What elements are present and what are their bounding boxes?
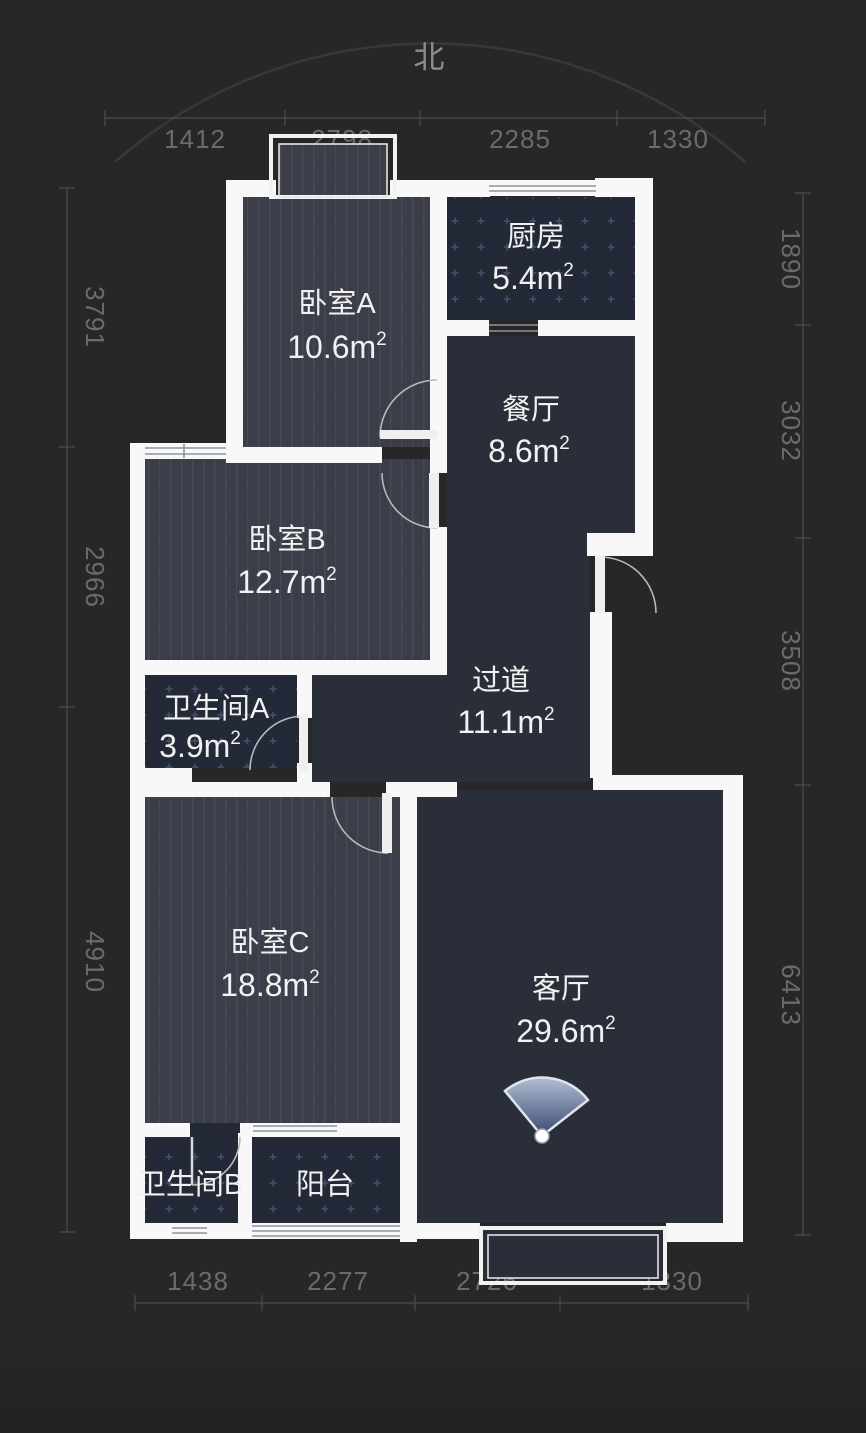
dim-top-4: 1330 [647,124,709,154]
wall-segment [635,178,653,533]
compass-north-label: 北 [414,40,445,75]
bottom-vignette [0,1340,866,1433]
room-label-dining-area: 8.6m2 [488,433,570,469]
dim-bottom-1: 1438 [167,1266,229,1296]
room-label-kitchen-area: 5.4m2 [492,260,574,296]
wall-segment [443,320,489,336]
wall-segment [723,775,743,1242]
room-label-living-area: 29.6m2 [516,1013,616,1049]
dim-right-2: 3032 [776,400,806,462]
door-leaf-bedroom-b [429,473,439,528]
dim-right-1: 1890 [776,228,806,290]
room-label-living-name: 客厅 [532,972,590,1005]
floorplan-canvas: 北 1412 2798 2285 1330 1438 2277 2726 133… [0,0,866,1433]
wall-segment [130,660,447,675]
room-bedroom-a-floor[interactable] [243,197,430,447]
wall-segment [226,180,243,463]
dim-top-1: 1412 [164,124,226,154]
wall-window-band [487,180,597,196]
room-kitchen-floor[interactable] [447,197,635,320]
bathroom-b-door-threshold [190,1123,240,1137]
wall-segment [190,782,330,797]
wall-segment [400,782,417,1242]
wall-segment [587,533,653,556]
dim-left-2: 2966 [80,546,110,608]
room-label-corridor-area: 11.1m2 [457,704,554,740]
room-label-bathroom-a-area: 3.9m2 [159,728,241,764]
room-bedroom-b-floor[interactable] [145,459,430,660]
room-label-bedroom-b-area: 12.7m2 [237,564,337,600]
wall-window-band [143,443,227,459]
room-label-bedroom-b-name: 卧室B [248,523,325,556]
dim-top-3: 2285 [489,124,551,154]
room-label-balcony-name: 阳台 [296,1168,354,1201]
wall-segment [130,768,192,797]
wall-segment [226,447,382,463]
wall-segment [130,1123,190,1137]
dim-right-3: 3508 [776,630,806,692]
room-label-corridor-name: 过道 [472,664,530,697]
dim-left-1: 3791 [80,286,110,348]
room-corridor-floor[interactable] [312,675,590,782]
wall-segment [666,1223,743,1242]
room-label-kitchen-name: 厨房 [507,220,565,253]
wall-segment [430,527,447,660]
room-label-bedroom-c-area: 18.8m2 [220,967,320,1003]
room-label-bedroom-a-area: 10.6m2 [287,329,387,365]
wall-segment [430,180,447,473]
door-leaf-bedroom-a [380,430,437,439]
wall-segment [538,320,637,336]
wall-segment [386,782,457,797]
dim-right-4: 6413 [776,964,806,1026]
room-bedroom-a-bay-floor[interactable] [279,144,387,197]
living-bay-floor [483,1226,663,1278]
dim-bottom-2: 2277 [307,1266,369,1296]
wall-segment [240,1123,413,1137]
dim-left-3: 4910 [80,931,110,993]
wall-segment [297,675,312,718]
room-label-bedroom-a-name: 卧室A [298,287,376,320]
room-label-bathroom-b-name: 卫生间B [137,1168,243,1201]
room-label-bathroom-a-name: 卫生间A [163,692,270,725]
wall-segment [593,775,743,790]
room-living-floor[interactable] [413,790,723,1223]
door-leaf-bathroom-a [299,714,308,772]
wall-segment [226,180,276,197]
wall-segment [130,443,145,1237]
room-label-bedroom-c-name: 卧室C [231,926,310,959]
wall-segment [590,612,612,778]
room-label-dining-name: 餐厅 [502,393,560,426]
door-leaf-entry [595,555,605,613]
floorplan-viewer: 北 1412 2798 2285 1330 1438 2277 2726 133… [0,0,866,1433]
camera-fan-dot[interactable] [535,1129,549,1143]
door-leaf-bedroom-c [382,793,392,853]
